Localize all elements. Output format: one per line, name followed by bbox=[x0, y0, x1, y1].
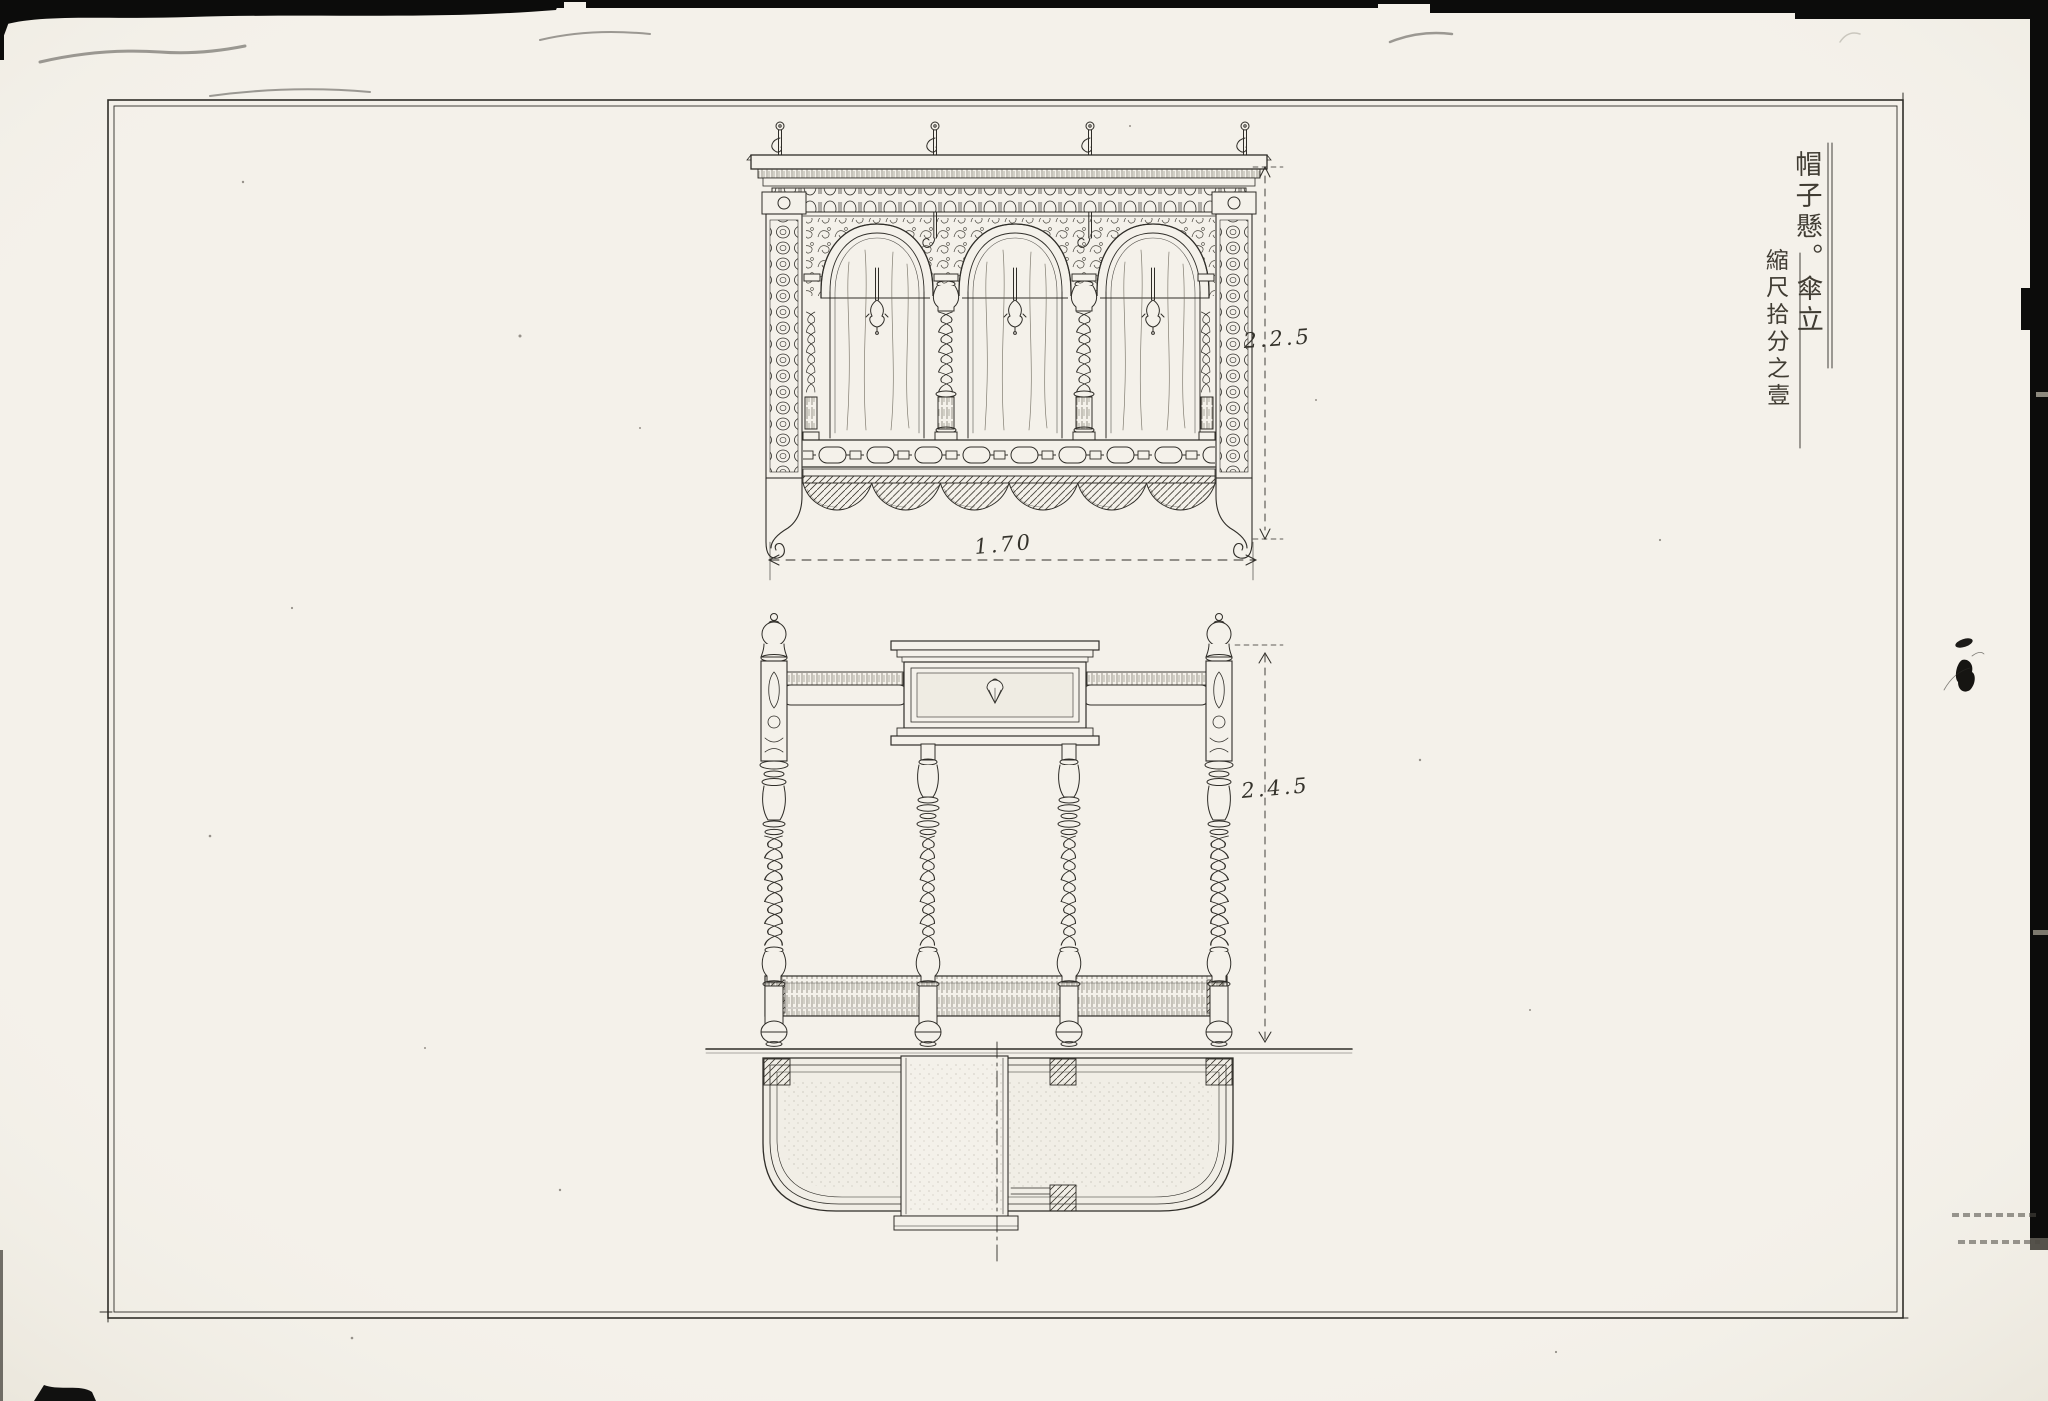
dimension-label-rack-height: 2.2.5 bbox=[1242, 324, 1313, 353]
stretcher-box bbox=[765, 976, 1227, 1016]
plan-center-box bbox=[894, 1056, 1018, 1230]
scale-vertical-text: 縮尺拾分之壹 bbox=[1762, 248, 1787, 410]
egg-and-dart-frieze bbox=[772, 188, 1246, 212]
dimension-label-rack-width: 1.70 bbox=[973, 530, 1034, 559]
drawer-box bbox=[891, 641, 1099, 745]
drawing-canvas: 2.2.5 1.70 2.4.5 bbox=[0, 0, 2048, 1401]
fretwork-band bbox=[803, 440, 1215, 476]
title-vertical-text: 帽子懸。傘立 bbox=[1792, 150, 1821, 336]
scanned-drawing-sheet: 2.2.5 1.70 2.4.5 帽子懸。傘立 縮尺拾 bbox=[0, 0, 2048, 1401]
cornice bbox=[747, 155, 1271, 186]
